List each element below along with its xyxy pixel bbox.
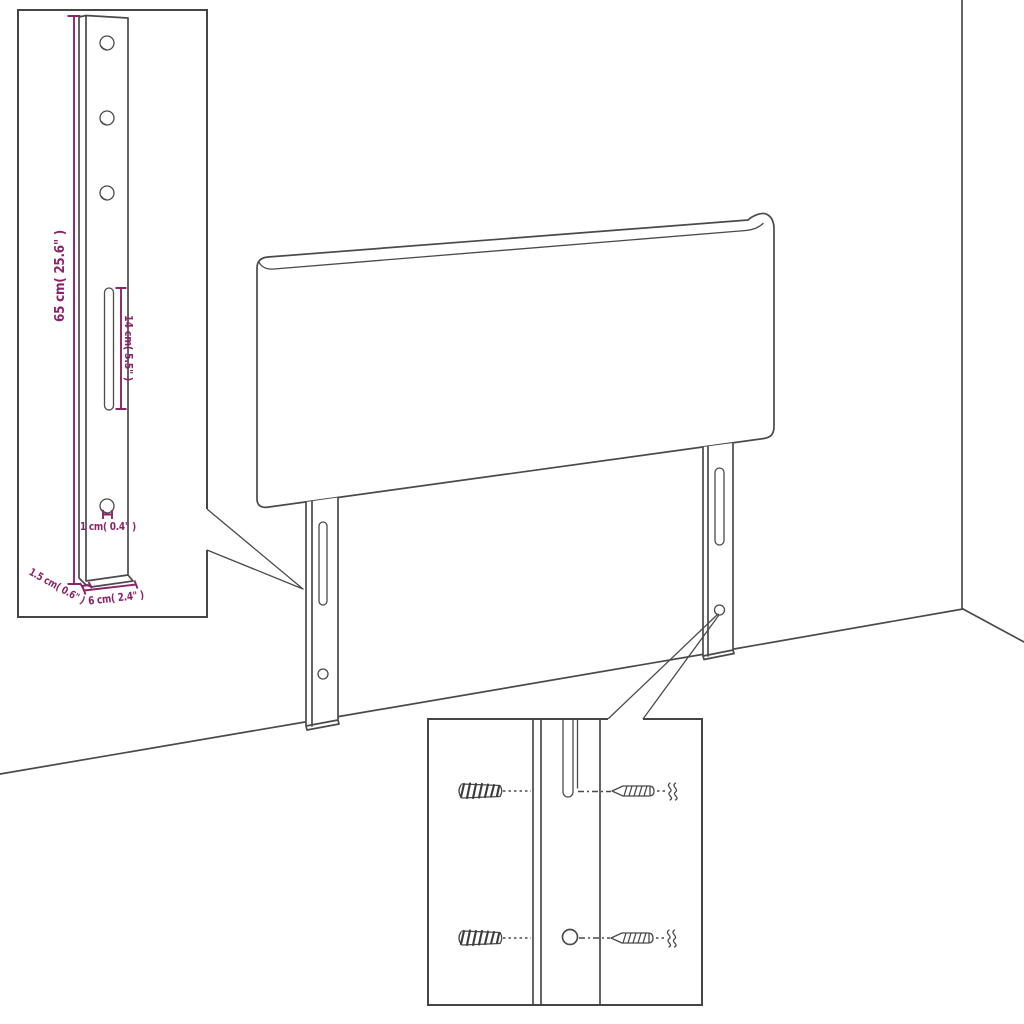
left-leg <box>306 498 339 731</box>
right-leg-hole <box>715 605 725 615</box>
diagram-canvas: 65 cm( 25.6" ) 14 cm( 5.5" ) 1 cm( 0.4" … <box>0 0 1024 1024</box>
left-leg-hole <box>318 669 328 679</box>
headboard <box>257 213 774 507</box>
callout-wedge-to-screw-inset <box>608 614 719 719</box>
dim-slot-label: 14 cm( 5.5" ) <box>122 315 135 381</box>
screw-body <box>611 933 653 943</box>
bracket-detail-inset: 65 cm( 25.6" ) 14 cm( 5.5" ) 1 cm( 0.4" … <box>18 10 207 617</box>
dim-height-label: 65 cm( 25.6" ) <box>53 230 68 322</box>
screw-body <box>612 786 654 796</box>
right-leg <box>703 443 734 660</box>
screw-inset-hole <box>563 930 578 945</box>
floor-line-right <box>963 609 1024 642</box>
screw-detail-inset <box>428 719 702 1005</box>
screw-inset-border <box>428 719 702 1005</box>
assembly-diagram: 65 cm( 25.6" ) 14 cm( 5.5" ) 1 cm( 0.4" … <box>0 0 1024 1024</box>
headboard-panel-outline <box>257 213 774 507</box>
left-leg-body <box>306 498 338 727</box>
dim-hole-label: 1 cm( 0.4" ) <box>80 520 136 533</box>
callout-wedge-to-left-leg <box>207 509 303 589</box>
